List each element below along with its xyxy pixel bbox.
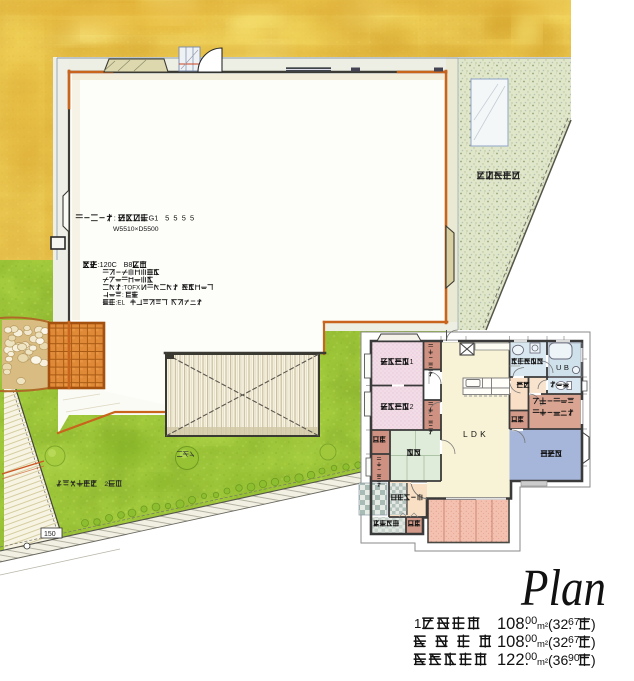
svg-text:00: 00 <box>525 633 537 645</box>
svg-text:5: 5 <box>182 213 186 222</box>
svg-text:67: 67 <box>568 634 580 646</box>
svg-text:B8: B8 <box>124 260 133 269</box>
svg-text:5: 5 <box>190 213 194 222</box>
svg-text:G1: G1 <box>149 213 159 222</box>
svg-text:m²: m² <box>537 621 548 632</box>
svg-text:): ) <box>591 652 596 668</box>
svg-text:67: 67 <box>568 616 580 628</box>
svg-text:150: 150 <box>44 531 56 538</box>
svg-text::TOFX: :TOFX <box>122 284 140 291</box>
svg-text:1: 1 <box>414 616 421 631</box>
svg-text:5: 5 <box>165 213 169 222</box>
svg-text::120C: :120C <box>98 260 117 269</box>
svg-text:m²: m² <box>537 657 548 668</box>
svg-text:2: 2 <box>410 404 414 411</box>
svg-text:): ) <box>591 616 596 632</box>
svg-text::EL: :EL <box>116 299 126 306</box>
svg-text::: : <box>114 213 116 222</box>
svg-text:90: 90 <box>568 652 580 664</box>
svg-text:00: 00 <box>525 651 537 663</box>
svg-text:W5510×D5500: W5510×D5500 <box>113 226 159 233</box>
svg-text:5: 5 <box>173 213 177 222</box>
svg-text:UB: UB <box>556 363 571 372</box>
svg-text:LDK: LDK <box>463 429 489 439</box>
svg-text::: : <box>122 292 124 299</box>
svg-text:1: 1 <box>410 359 414 366</box>
svg-text:): ) <box>591 634 596 650</box>
svg-text:m²: m² <box>537 639 548 650</box>
svg-text:Plan: Plan <box>520 560 606 617</box>
svg-text:00: 00 <box>525 615 537 627</box>
svg-text:2: 2 <box>104 481 108 488</box>
